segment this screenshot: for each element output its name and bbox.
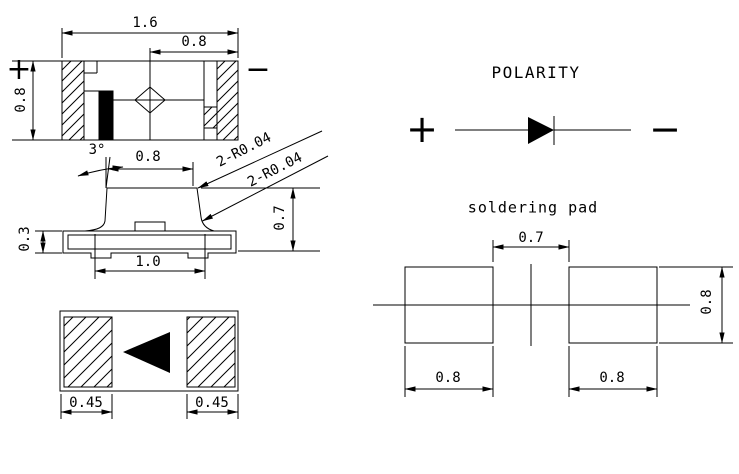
polarity-plus-mark: +: [406, 110, 438, 148]
soldering-pad-height-label: 0.8: [700, 289, 714, 314]
top-view-cathode-mark-bar: [99, 91, 113, 139]
side-view-bottom-width-label: 1.0: [135, 255, 160, 269]
led-package-drawing: 1.6 0.8 0.8 + − 3° 0.8 2-R0.04 2-R0.04 0…: [0, 0, 739, 474]
top-view-right-terminal-hatch: [217, 61, 238, 140]
soldering-pad-title: soldering pad: [468, 201, 598, 216]
top-view-overall-width-label: 1.6: [132, 16, 157, 30]
polarity-minus-mark: −: [649, 110, 681, 148]
top-view-minus-mark: −: [245, 55, 270, 85]
soldering-pad-gap-label: 0.7: [518, 231, 543, 245]
top-view-left-terminal-hatch: [62, 61, 84, 140]
polarity-diagram: [455, 116, 631, 145]
soldering-pad-diagram: [373, 240, 733, 397]
side-view-top-width-label: 0.8: [135, 150, 160, 164]
side-view-body-height-label: 0.7: [273, 205, 287, 230]
side-view-base-inner: [68, 235, 231, 249]
polarity-title: POLARITY: [491, 65, 580, 81]
bottom-view-polarity-triangle: [123, 332, 170, 373]
side-view-base-height-label: 0.3: [18, 226, 32, 251]
top-view-plus-mark: +: [6, 55, 31, 85]
side-view-die-bump: [135, 222, 165, 231]
bottom-view-left-pad-hatch: [64, 317, 112, 387]
bottom-view-right-pad-hatch: [187, 317, 235, 387]
drawing-canvas: [0, 0, 739, 474]
top-view-height-label: 0.8: [14, 87, 28, 112]
bottom-view-right-pad-label: 0.45: [195, 396, 229, 410]
soldering-pad-right-width-label: 0.8: [599, 371, 624, 385]
bottom-view-left-pad-label: 0.45: [69, 396, 103, 410]
side-view-angle-label: 3°: [89, 143, 106, 157]
dim-arc-lead-angle: [78, 167, 123, 176]
side-view-body-outline: [85, 188, 214, 231]
top-view-half-width-label: 0.8: [181, 35, 206, 49]
polarity-diode-triangle: [528, 117, 554, 144]
soldering-pad-left-width-label: 0.8: [435, 371, 460, 385]
top-view-right-terminal-notch-hatch: [204, 107, 217, 128]
